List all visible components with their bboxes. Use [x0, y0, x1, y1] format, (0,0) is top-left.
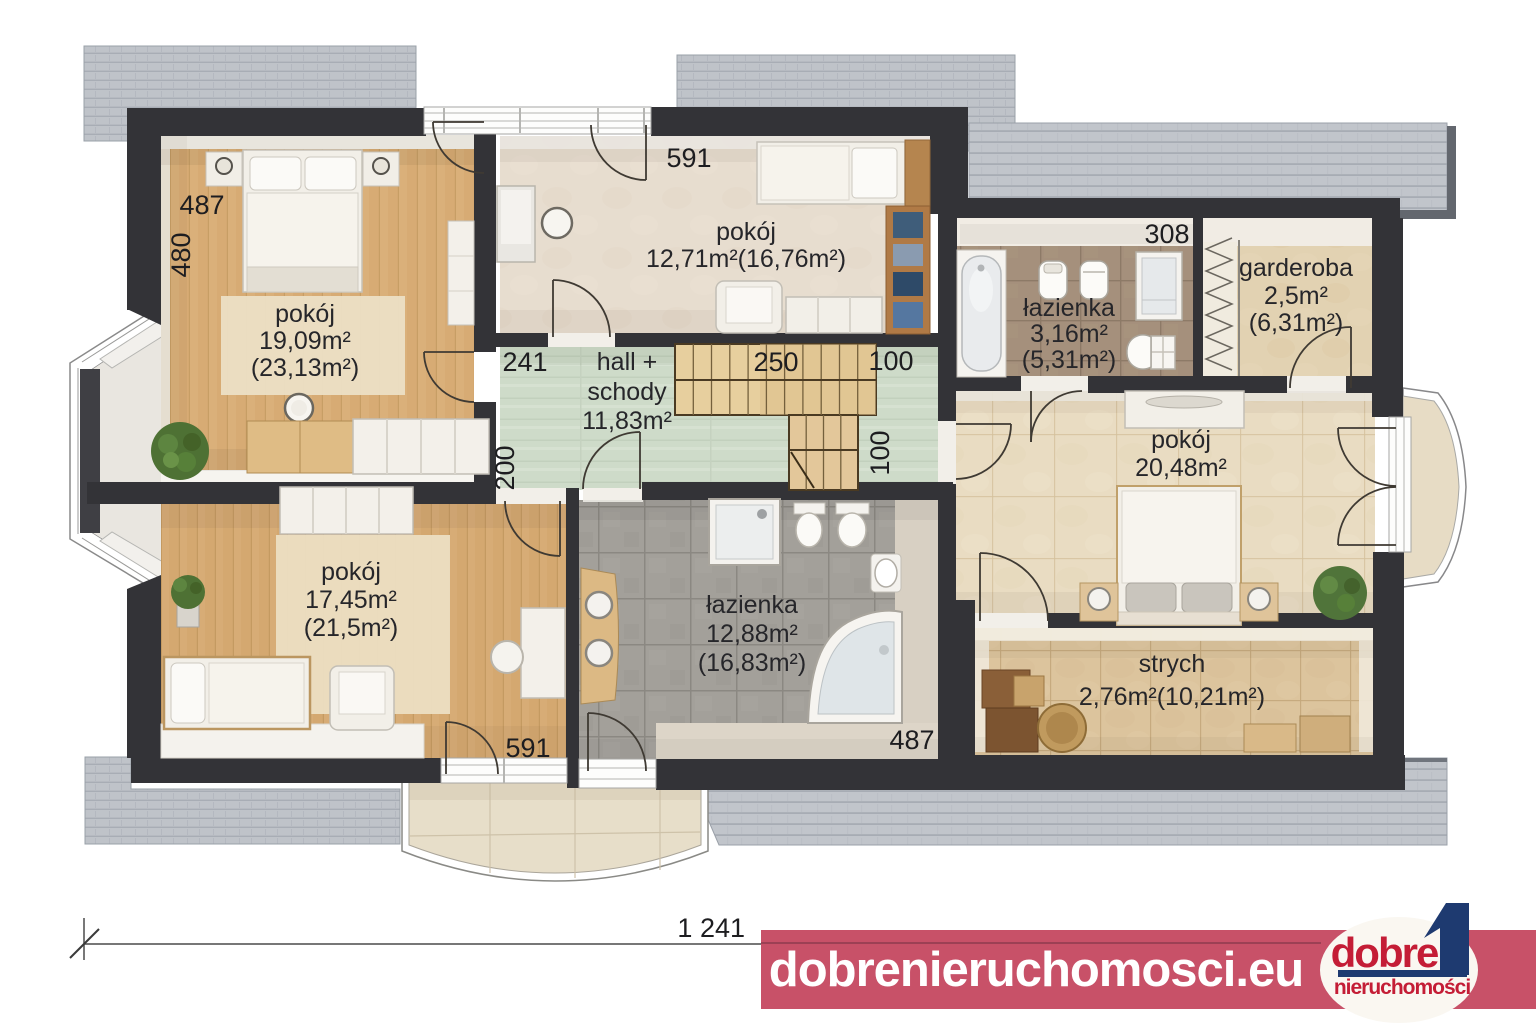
- svg-text:pokój: pokój: [1151, 426, 1211, 454]
- svg-text:nieruchomości: nieruchomości: [1334, 976, 1471, 999]
- svg-text:3,16m²: 3,16m²: [1030, 320, 1108, 348]
- svg-text:250: 250: [753, 347, 798, 377]
- svg-text:100: 100: [865, 430, 895, 475]
- svg-text:(21,5m²): (21,5m²): [304, 614, 398, 642]
- svg-text:11,83m²: 11,83m²: [582, 407, 672, 435]
- svg-text:(23,13m²): (23,13m²): [251, 354, 359, 382]
- svg-text:(5,31m²): (5,31m²): [1022, 346, 1116, 374]
- svg-text:łazienka: łazienka: [706, 591, 798, 619]
- svg-text:12,88m²: 12,88m²: [706, 620, 798, 648]
- svg-text:pokój: pokój: [321, 558, 381, 586]
- svg-text:garderoba: garderoba: [1239, 254, 1353, 282]
- svg-text:strych: strych: [1139, 650, 1206, 678]
- svg-text:pokój: pokój: [275, 300, 335, 328]
- svg-text:schody: schody: [587, 378, 667, 406]
- svg-text:487: 487: [889, 725, 934, 755]
- svg-text:hall +: hall +: [597, 348, 657, 376]
- svg-text:pokój: pokój: [716, 218, 776, 246]
- svg-text:(6,31m²): (6,31m²): [1249, 309, 1343, 337]
- svg-text:591: 591: [505, 733, 550, 763]
- svg-text:241: 241: [502, 347, 547, 377]
- svg-text:591: 591: [666, 143, 711, 173]
- svg-text:17,45m²: 17,45m²: [305, 586, 397, 614]
- svg-text:100: 100: [868, 346, 913, 376]
- svg-text:2,76m²(10,21m²): 2,76m²(10,21m²): [1079, 683, 1265, 711]
- svg-text:308: 308: [1144, 219, 1189, 249]
- svg-text:dobrenieruchomosci.eu: dobrenieruchomosci.eu: [769, 943, 1303, 997]
- svg-text:200: 200: [490, 445, 520, 490]
- svg-text:2,5m²: 2,5m²: [1264, 282, 1328, 310]
- svg-text:(16,83m²): (16,83m²): [698, 649, 806, 677]
- svg-text:20,48m²: 20,48m²: [1135, 454, 1227, 482]
- svg-text:480: 480: [166, 232, 196, 277]
- svg-text:487: 487: [179, 190, 224, 220]
- svg-text:12,71m²(16,76m²): 12,71m²(16,76m²): [646, 245, 846, 273]
- svg-text:19,09m²: 19,09m²: [259, 327, 351, 355]
- svg-text:dobre: dobre: [1331, 929, 1438, 976]
- svg-text:1 241: 1 241: [677, 913, 745, 943]
- svg-text:łazienka: łazienka: [1023, 294, 1115, 322]
